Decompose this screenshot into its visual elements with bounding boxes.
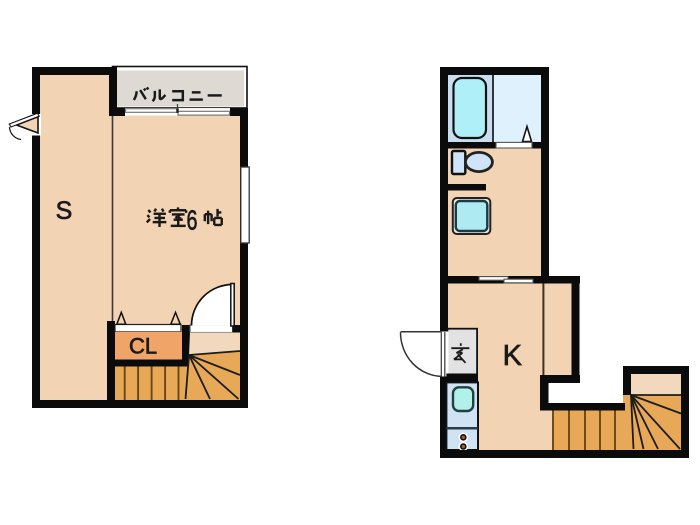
svg-text:CL: CL xyxy=(129,334,157,359)
svg-text:K: K xyxy=(503,340,523,372)
svg-text:S: S xyxy=(56,197,73,225)
svg-text:6: 6 xyxy=(187,205,198,236)
